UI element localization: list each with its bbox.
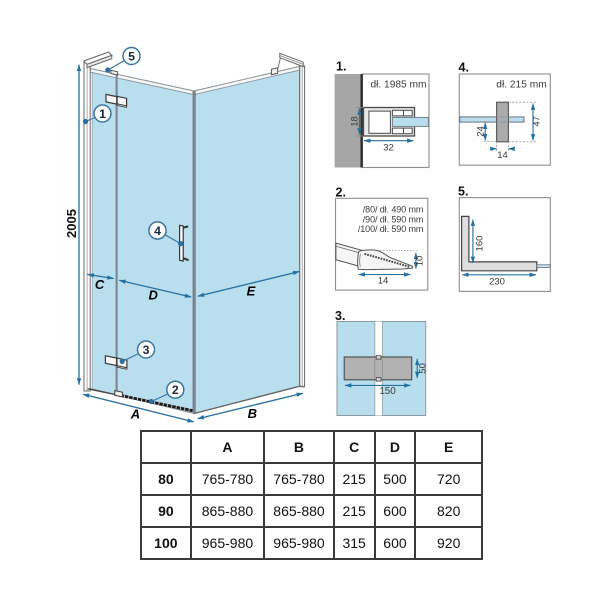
svg-text:1: 1 (99, 107, 106, 121)
svg-text:/90/ dł. 590 mm: /90/ dł. 590 mm (363, 214, 424, 224)
svg-text:C: C (95, 277, 105, 292)
svg-text:18: 18 (350, 116, 361, 127)
svg-text:4: 4 (154, 224, 161, 238)
svg-text:2005: 2005 (64, 209, 79, 238)
svg-text:E: E (247, 284, 256, 299)
svg-text:3: 3 (143, 343, 150, 357)
svg-text:14: 14 (497, 150, 508, 161)
svg-text:3.: 3. (335, 309, 345, 323)
svg-text:230: 230 (489, 276, 505, 287)
svg-text:/100/ dł. 590 mm: /100/ dł. 590 mm (358, 224, 423, 234)
svg-text:47: 47 (532, 116, 543, 127)
svg-text:160: 160 (474, 236, 485, 252)
svg-text:24: 24 (476, 126, 487, 137)
svg-text:150: 150 (379, 386, 396, 397)
svg-text:5: 5 (128, 50, 135, 64)
svg-text:2: 2 (172, 383, 179, 397)
svg-text:14: 14 (378, 276, 389, 287)
svg-text:10: 10 (414, 256, 425, 267)
svg-text:dł. 215 mm: dł. 215 mm (496, 80, 546, 91)
svg-text:B: B (248, 406, 257, 421)
svg-text:2.: 2. (336, 186, 346, 200)
svg-text:32: 32 (383, 143, 394, 154)
svg-text:dł. 1985 mm: dł. 1985 mm (370, 80, 426, 91)
svg-text:1.: 1. (336, 60, 346, 74)
svg-text:50: 50 (418, 363, 429, 374)
svg-text:A: A (130, 407, 140, 422)
svg-text:/80/ dł. 490 mm: /80/ dł. 490 mm (363, 205, 424, 215)
svg-text:D: D (149, 288, 159, 303)
svg-text:5.: 5. (458, 185, 468, 199)
svg-text:4.: 4. (459, 61, 469, 75)
